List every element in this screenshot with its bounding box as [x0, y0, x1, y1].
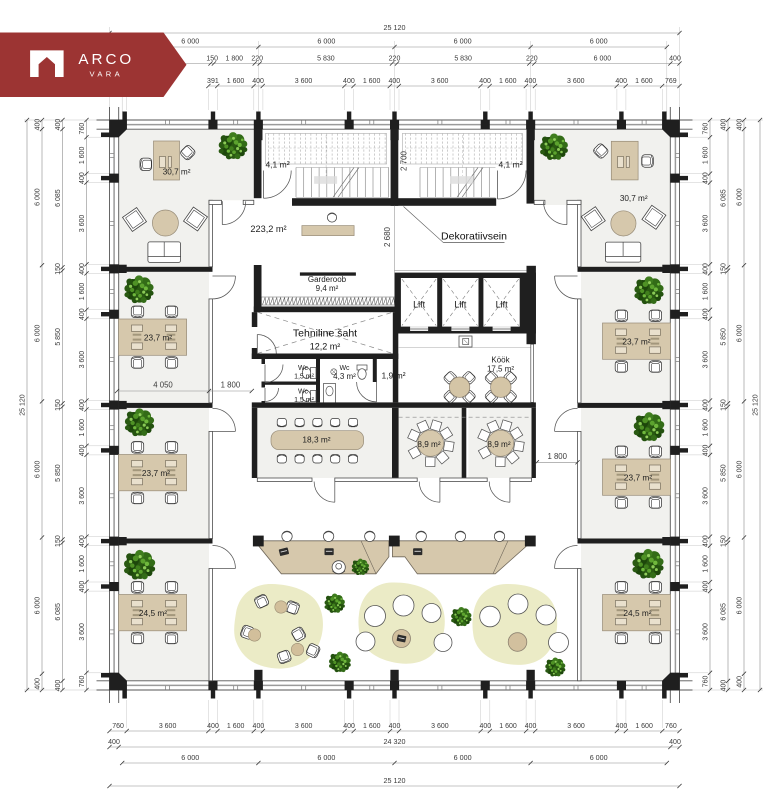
svg-text:400: 400 [702, 535, 709, 547]
svg-text:400: 400 [79, 535, 86, 547]
svg-text:5 850: 5 850 [720, 328, 727, 346]
svg-text:400: 400 [207, 723, 219, 730]
svg-text:400: 400 [55, 680, 62, 692]
svg-text:400: 400 [79, 172, 86, 184]
svg-text:400: 400 [253, 723, 265, 730]
svg-text:3 600: 3 600 [702, 351, 709, 369]
svg-text:1 600: 1 600 [702, 147, 709, 165]
svg-text:24,5 m²: 24,5 m² [139, 608, 167, 618]
svg-text:400: 400 [388, 78, 400, 85]
svg-text:Köök: Köök [491, 355, 510, 364]
svg-text:1 600: 1 600 [79, 147, 86, 165]
svg-text:Tehniline šaht: Tehniline šaht [293, 328, 357, 340]
svg-text:400: 400 [525, 78, 537, 85]
svg-text:23,7 m²: 23,7 m² [624, 472, 652, 482]
svg-text:24,5 m²: 24,5 m² [623, 608, 651, 618]
svg-text:391: 391 [207, 78, 219, 85]
svg-text:400: 400 [343, 78, 355, 85]
svg-text:220: 220 [389, 56, 401, 63]
svg-text:Lift: Lift [454, 300, 467, 310]
svg-text:Garderoob: Garderoob [308, 275, 347, 284]
svg-text:6 000: 6 000 [34, 461, 41, 479]
svg-text:4,3 m²: 4,3 m² [333, 372, 356, 381]
svg-text:1 600: 1 600 [79, 555, 86, 573]
svg-text:6 000: 6 000 [454, 753, 472, 762]
svg-text:25 120: 25 120 [384, 23, 406, 32]
svg-text:23,7 m²: 23,7 m² [144, 332, 172, 342]
svg-text:400: 400 [252, 78, 264, 85]
svg-text:6 000: 6 000 [736, 597, 743, 615]
svg-text:ARCO: ARCO [78, 51, 134, 68]
svg-text:150: 150 [720, 263, 727, 275]
svg-text:1 600: 1 600 [702, 283, 709, 301]
svg-text:1 600: 1 600 [702, 555, 709, 573]
svg-text:6 000: 6 000 [34, 324, 41, 342]
svg-text:400: 400 [79, 308, 86, 320]
svg-text:6 085: 6 085 [720, 603, 727, 621]
svg-text:400: 400 [108, 739, 120, 746]
svg-text:Lift: Lift [413, 300, 426, 310]
svg-text:150: 150 [720, 535, 727, 547]
svg-text:Wc: Wc [298, 389, 309, 396]
svg-text:3 600: 3 600 [159, 723, 177, 730]
svg-text:6 085: 6 085 [55, 189, 62, 207]
svg-text:400: 400 [479, 78, 491, 85]
svg-text:1 600: 1 600 [363, 78, 381, 85]
svg-text:18,3 m²: 18,3 m² [302, 435, 330, 445]
svg-text:400: 400 [702, 172, 709, 184]
svg-text:400: 400 [55, 119, 62, 131]
svg-text:6 000: 6 000 [317, 37, 335, 46]
svg-text:1 600: 1 600 [363, 723, 381, 730]
svg-text:23,7 m²: 23,7 m² [142, 468, 170, 478]
svg-text:5 850: 5 850 [55, 464, 62, 482]
svg-text:150: 150 [720, 399, 727, 411]
svg-text:6 000: 6 000 [181, 37, 199, 46]
svg-text:6 000: 6 000 [34, 188, 41, 206]
svg-text:6 000: 6 000 [34, 597, 41, 615]
svg-text:769: 769 [665, 78, 677, 85]
svg-text:150: 150 [206, 56, 218, 63]
svg-text:1 600: 1 600 [635, 78, 653, 85]
svg-text:223,2 m²: 223,2 m² [250, 224, 286, 234]
svg-text:23,7 m²: 23,7 m² [622, 336, 650, 346]
svg-text:400: 400 [720, 119, 727, 131]
svg-text:3 600: 3 600 [702, 215, 709, 233]
svg-text:9,4 m²: 9,4 m² [316, 284, 339, 293]
svg-text:150: 150 [55, 535, 62, 547]
svg-text:25 120: 25 120 [384, 776, 406, 785]
svg-text:6 000: 6 000 [590, 37, 608, 46]
svg-text:400: 400 [669, 739, 681, 746]
svg-text:150: 150 [55, 399, 62, 411]
svg-text:3 600: 3 600 [431, 723, 449, 730]
svg-text:Lift: Lift [496, 300, 509, 310]
svg-text:3 600: 3 600 [79, 215, 86, 233]
svg-text:760: 760 [702, 675, 709, 687]
svg-text:1,5 m²: 1,5 m² [294, 373, 315, 380]
svg-text:3 600: 3 600 [431, 78, 449, 85]
svg-text:760: 760 [112, 723, 124, 730]
svg-text:3 600: 3 600 [702, 623, 709, 641]
svg-text:1 800: 1 800 [226, 56, 244, 63]
svg-text:3 600: 3 600 [79, 623, 86, 641]
svg-text:6 085: 6 085 [55, 603, 62, 621]
svg-text:5 850: 5 850 [55, 328, 62, 346]
svg-text:400: 400 [79, 444, 86, 456]
svg-text:400: 400 [79, 581, 86, 593]
svg-text:5 830: 5 830 [454, 56, 472, 63]
svg-text:400: 400 [34, 678, 41, 690]
svg-text:220: 220 [526, 56, 538, 63]
svg-text:400: 400 [702, 444, 709, 456]
svg-text:400: 400 [702, 308, 709, 320]
svg-text:24 320: 24 320 [384, 737, 406, 746]
svg-text:30,7 m²: 30,7 m² [163, 167, 191, 176]
svg-text:400: 400 [479, 723, 491, 730]
svg-text:400: 400 [720, 680, 727, 692]
svg-text:3 600: 3 600 [702, 487, 709, 505]
svg-text:1 600: 1 600 [79, 283, 86, 301]
svg-text:220: 220 [251, 56, 263, 63]
svg-text:400: 400 [343, 723, 355, 730]
svg-text:1 600: 1 600 [635, 723, 653, 730]
svg-text:3 600: 3 600 [79, 351, 86, 369]
svg-text:400: 400 [702, 399, 709, 411]
svg-text:4 050: 4 050 [153, 381, 173, 390]
svg-text:400: 400 [525, 723, 537, 730]
svg-text:25 120: 25 120 [19, 394, 26, 416]
svg-text:3 600: 3 600 [567, 78, 585, 85]
svg-text:150: 150 [55, 263, 62, 275]
svg-text:8,9 m²: 8,9 m² [417, 440, 440, 449]
svg-text:1 600: 1 600 [79, 419, 86, 437]
svg-text:760: 760 [665, 723, 677, 730]
svg-text:6 000: 6 000 [181, 753, 199, 762]
svg-text:1 600: 1 600 [227, 78, 245, 85]
svg-text:3 600: 3 600 [567, 723, 585, 730]
svg-text:6 000: 6 000 [736, 324, 743, 342]
svg-text:400: 400 [79, 399, 86, 411]
svg-text:3 600: 3 600 [79, 487, 86, 505]
svg-text:1 600: 1 600 [499, 723, 517, 730]
svg-text:400: 400 [79, 263, 86, 275]
svg-text:2 680: 2 680 [383, 226, 392, 247]
svg-text:400: 400 [736, 676, 743, 688]
svg-text:5 850: 5 850 [720, 464, 727, 482]
svg-text:Dekoratiivsein: Dekoratiivsein [441, 231, 507, 243]
svg-text:6 000: 6 000 [590, 753, 608, 762]
svg-text:1 800: 1 800 [547, 452, 567, 461]
svg-text:VARA: VARA [89, 70, 123, 79]
svg-text:760: 760 [79, 123, 86, 135]
svg-text:400: 400 [702, 263, 709, 275]
svg-text:1 800: 1 800 [221, 381, 241, 390]
svg-text:400: 400 [616, 723, 628, 730]
svg-text:6 000: 6 000 [317, 753, 335, 762]
svg-text:400: 400 [702, 581, 709, 593]
svg-text:1 600: 1 600 [499, 78, 517, 85]
svg-text:30,7 m²: 30,7 m² [620, 194, 648, 203]
svg-text:Wc: Wc [298, 365, 309, 372]
svg-text:400: 400 [34, 119, 41, 131]
svg-text:400: 400 [669, 56, 681, 63]
svg-text:4,1 m²: 4,1 m² [265, 159, 289, 169]
svg-text:5 830: 5 830 [317, 56, 335, 63]
svg-text:1 600: 1 600 [702, 419, 709, 437]
svg-text:6 000: 6 000 [454, 37, 472, 46]
svg-text:3 600: 3 600 [295, 78, 313, 85]
svg-text:1,9 m²: 1,9 m² [381, 370, 405, 380]
svg-text:4,1 m²: 4,1 m² [498, 159, 522, 169]
svg-text:6 000: 6 000 [736, 461, 743, 479]
svg-text:760: 760 [702, 123, 709, 135]
svg-text:760: 760 [79, 675, 86, 687]
svg-text:1 600: 1 600 [227, 723, 245, 730]
svg-text:6 000: 6 000 [594, 56, 612, 63]
svg-text:6 000: 6 000 [736, 188, 743, 206]
svg-text:3 600: 3 600 [295, 723, 313, 730]
svg-text:6 085: 6 085 [720, 189, 727, 207]
svg-text:2 700: 2 700 [400, 150, 409, 171]
svg-text:400: 400 [615, 78, 627, 85]
svg-text:400: 400 [389, 723, 401, 730]
svg-text:8,9 m²: 8,9 m² [487, 440, 510, 449]
svg-text:400: 400 [736, 119, 743, 131]
svg-text:25 120: 25 120 [752, 394, 759, 416]
svg-text:12,2 m²: 12,2 m² [310, 342, 341, 352]
